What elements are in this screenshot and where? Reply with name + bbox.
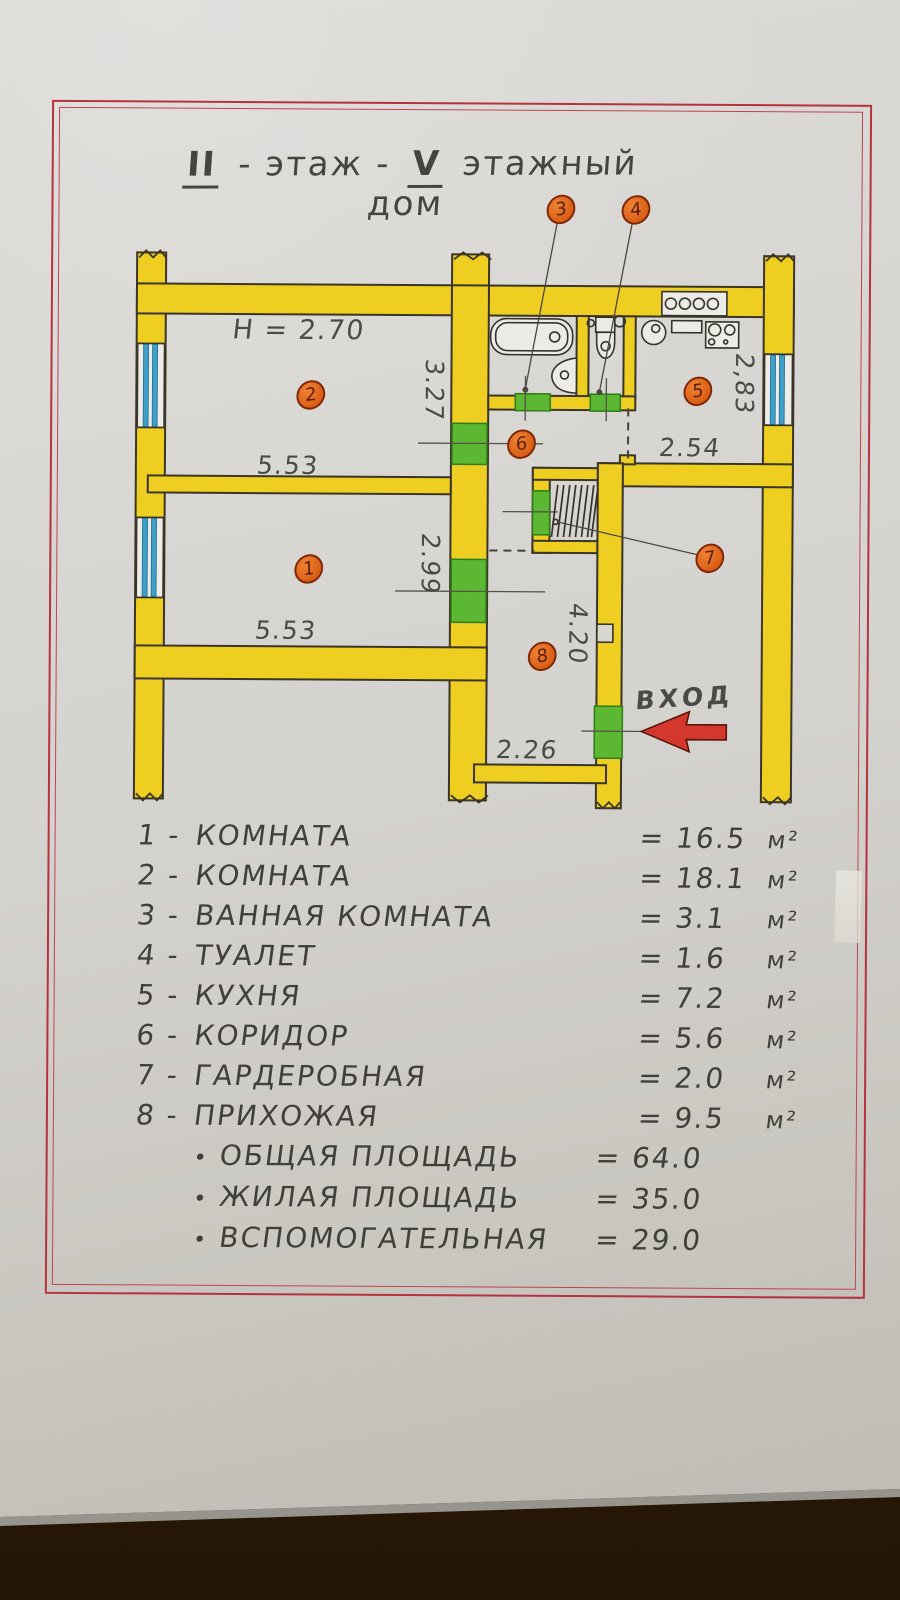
legend-name: КОМНАТА: [194, 861, 642, 893]
wall-bath-right: [576, 316, 589, 398]
floor-plan-drawing: [0, 0, 900, 1600]
legend-num: 4 -: [135, 940, 197, 969]
door-entrance: [594, 706, 622, 758]
legend-row-7: 7 - ГАРДЕРОБНАЯ = 2.0 м²: [134, 1060, 822, 1095]
legend-name: ТУАЛЕТ: [193, 941, 641, 973]
legend-unit: м²: [764, 1066, 822, 1095]
legend-value: = 16.5: [638, 823, 770, 853]
legend-unit: м²: [765, 946, 823, 975]
photo-background: II - этаж - V этажный дом: [0, 0, 900, 1600]
bullet-icon: •: [191, 1226, 221, 1255]
legend-unit: м²: [765, 866, 823, 895]
bullet-icon: •: [192, 1144, 222, 1173]
dim-room2-depth: 3.27: [420, 358, 449, 423]
legend-row-5: 5 - КУХНЯ = 7.2 м²: [135, 980, 823, 1015]
legend-num: 7 -: [134, 1060, 196, 1089]
legend-num: 1 -: [136, 820, 198, 849]
total-value: = 35.0: [594, 1184, 736, 1214]
total-name: ЖИЛАЯ ПЛОЩАДЬ: [218, 1182, 598, 1213]
wall-wardrobe-bottom: [532, 541, 597, 553]
legend-num: 2 -: [136, 860, 198, 889]
legend-name: КОРИДОР: [193, 1021, 641, 1053]
window-room1: [136, 517, 163, 597]
legend-row-3: 3 - ВАННАЯ КОМНАТА = 3.1 м²: [135, 900, 823, 935]
wall-kitchen-bottom: [598, 463, 793, 487]
dim-hall-length: 4.20: [563, 602, 592, 667]
legend-num: 6 -: [135, 1020, 197, 1049]
legend-value: = 7.2: [637, 983, 769, 1013]
room-legend: 1 - КОМНАТА = 16.5 м² 2 - КОМНАТА = 18.1…: [135, 820, 822, 1267]
dim-kitchen-depth: 2,83: [730, 352, 759, 417]
legend-unit: м²: [764, 1026, 822, 1055]
legend-value: = 18.1: [638, 863, 770, 893]
kitchen-counter: [672, 321, 702, 333]
wall-wardrobe-top: [533, 468, 598, 480]
legend-value: = 2.0: [636, 1063, 768, 1093]
legend-value: = 1.6: [637, 943, 769, 973]
toilet-icon: [587, 316, 625, 359]
legend-value: = 3.1: [637, 903, 769, 933]
legend-unit: м²: [764, 1106, 822, 1135]
ceiling-height-label: Н = 2.70: [231, 314, 367, 346]
total-row-living: • ЖИЛАЯ ПЛОЩАДЬ = 35.0: [191, 1182, 735, 1217]
legend-unit: м²: [765, 986, 823, 1015]
legend-value: = 5.6: [637, 1023, 769, 1053]
legend-num: 5 -: [135, 980, 197, 1009]
paper-sheet: II - этаж - V этажный дом: [0, 0, 900, 1600]
legend-num: 3 -: [135, 900, 197, 929]
wall-room1-bottom: [135, 645, 487, 680]
kitchen-sink-icon: [642, 320, 666, 344]
legend-row-2: 2 - КОМНАТА = 18.1 м²: [135, 860, 823, 895]
tape-patch: [834, 870, 862, 943]
door-toilet: [590, 394, 620, 411]
door-wardrobe: [532, 491, 549, 535]
entrance-arrow: [641, 711, 726, 752]
wall-stub-mid: [452, 254, 489, 288]
legend-row-4: 4 - ТУАЛЕТ = 1.6 м²: [135, 940, 823, 975]
legend-row-1: 1 - КОМНАТА = 16.5 м²: [136, 820, 824, 855]
bathtub-icon: [491, 319, 573, 356]
total-row-auxiliary: • ВСПОМОГАТЕЛЬНАЯ = 29.0: [191, 1223, 735, 1258]
area-totals: • ОБЩАЯ ПЛОЩАДЬ = 64.0 • ЖИЛАЯ ПЛОЩАДЬ =…: [193, 1141, 734, 1258]
total-name: ОБЩАЯ ПЛОЩАДЬ: [218, 1141, 598, 1172]
wall-hall-bottom: [474, 764, 606, 783]
stove-icon: [706, 322, 739, 348]
dim-room1-depth: 2.99: [416, 532, 445, 597]
dim-kitchen-width: 2.54: [658, 433, 723, 462]
bathroom-sink-icon: [552, 358, 577, 393]
wall-toilet-right: [623, 316, 636, 398]
wall-right: [761, 256, 794, 802]
legend-name: ВАННАЯ КОМНАТА: [193, 901, 641, 933]
legend-num: 8 -: [134, 1100, 196, 1129]
legend-value: = 9.5: [636, 1103, 768, 1133]
legend-name: КУХНЯ: [193, 981, 641, 1013]
dim-hall-width: 2.26: [495, 735, 560, 764]
window-kitchen: [764, 354, 792, 425]
dim-room1-width: 5.53: [253, 616, 318, 645]
total-row-overall: • ОБЩАЯ ПЛОЩАДЬ = 64.0: [192, 1141, 736, 1176]
legend-row-8: 8 - ПРИХОЖАЯ = 9.5 м²: [134, 1100, 822, 1135]
total-value: = 29.0: [593, 1225, 735, 1255]
wall-main-vertical: [449, 285, 489, 800]
window-room2: [137, 343, 165, 427]
door-bathroom: [515, 394, 550, 411]
legend-unit: м²: [766, 826, 824, 855]
total-value: = 64.0: [594, 1143, 736, 1173]
vent-grille: [662, 292, 727, 316]
bullet-icon: •: [191, 1185, 221, 1214]
legend-name: КОМНАТА: [194, 821, 642, 853]
legend-name: ГАРДЕРОБНАЯ: [192, 1061, 640, 1093]
wall-niche: [597, 624, 613, 642]
legend-unit: м²: [765, 906, 823, 935]
drawing-content: II - этаж - V этажный дом: [0, 0, 900, 1600]
legend-row-6: 6 - КОРИДОР = 5.6 м²: [134, 1020, 822, 1055]
legend-name: ПРИХОЖАЯ: [192, 1101, 640, 1133]
total-name: ВСПОМОГАТЕЛЬНАЯ: [217, 1223, 597, 1254]
dim-room2-width: 5.53: [255, 451, 320, 480]
